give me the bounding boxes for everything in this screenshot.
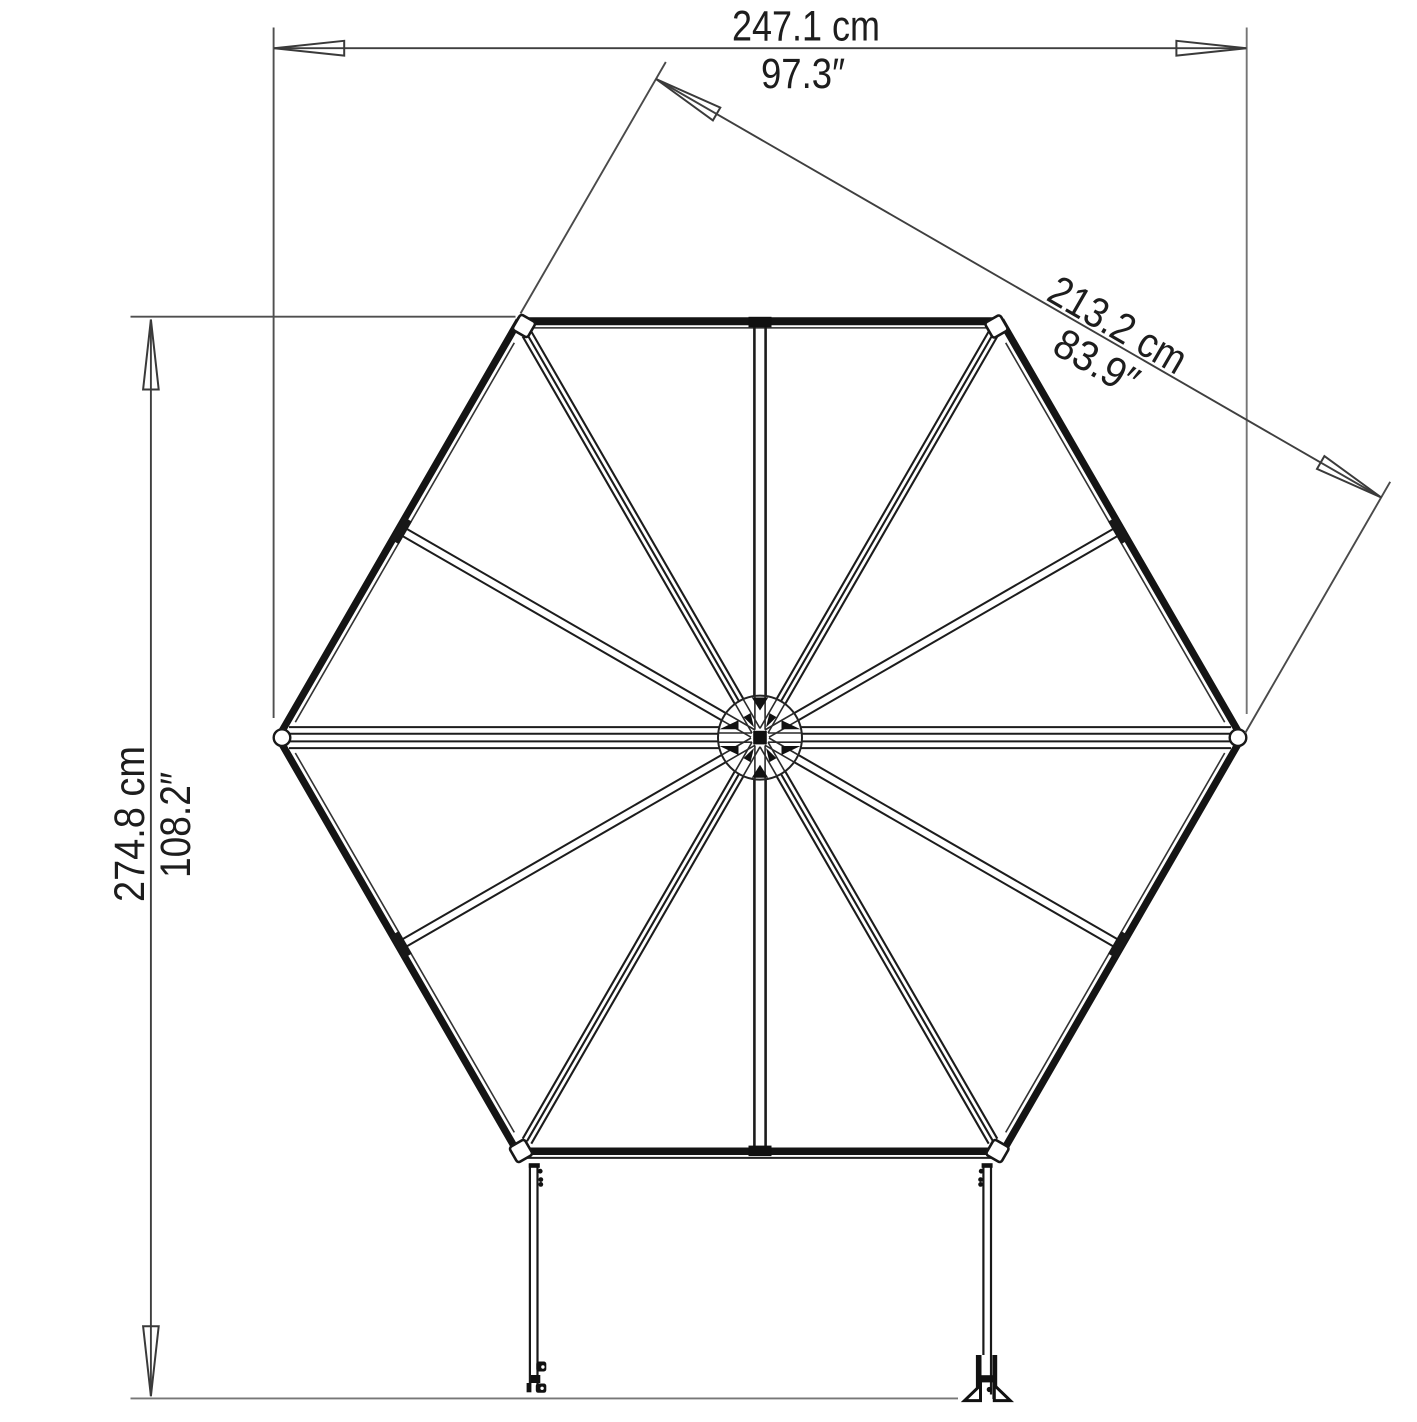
svg-text:247.1 cm: 247.1 cm (732, 4, 880, 51)
svg-text:97.3″: 97.3″ (761, 51, 845, 98)
svg-text:108.2″: 108.2″ (153, 772, 200, 878)
svg-text:274.8 cm: 274.8 cm (107, 746, 154, 902)
